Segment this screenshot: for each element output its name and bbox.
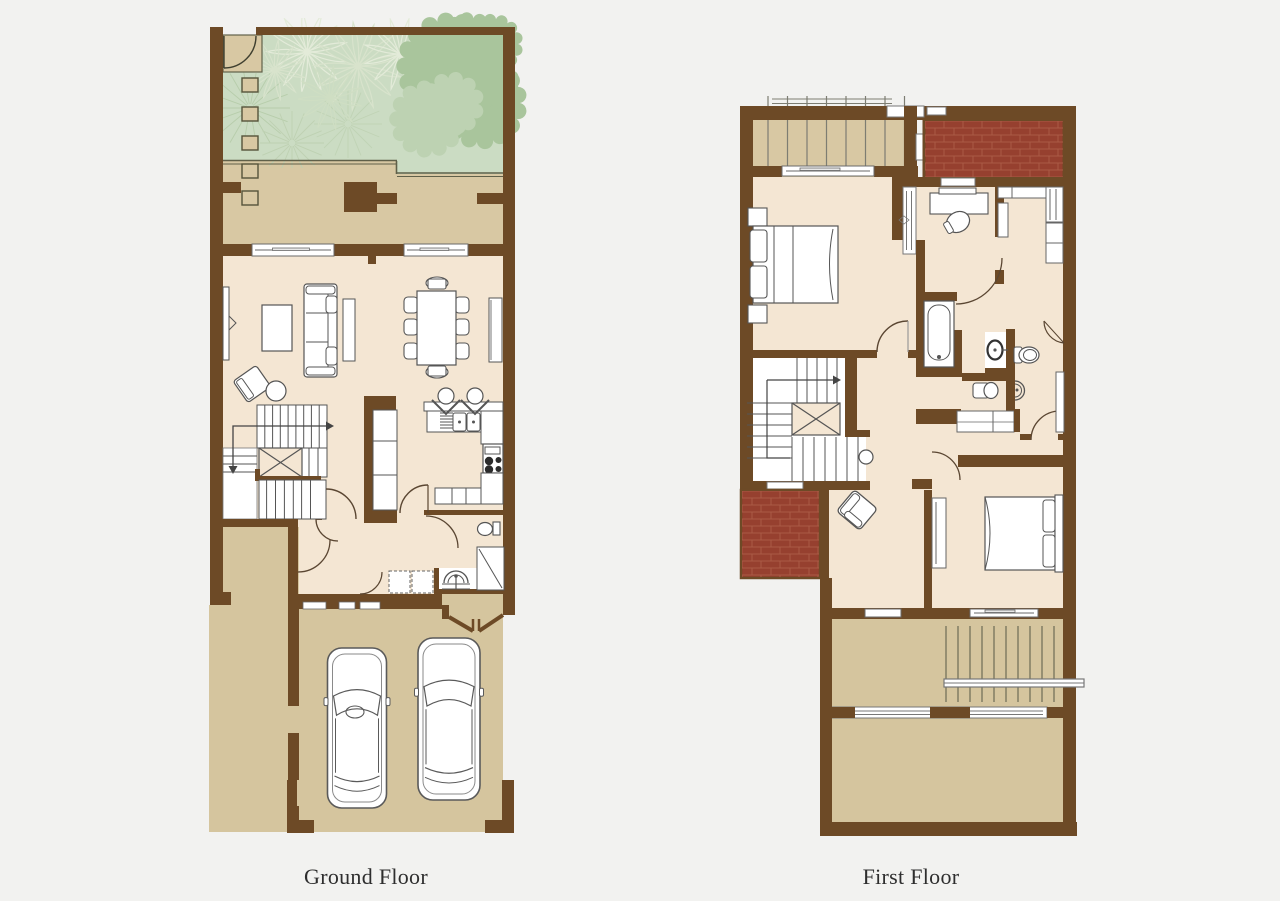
svg-text:First Floor: First Floor [863, 864, 960, 889]
svg-text:Ground Floor: Ground Floor [304, 864, 428, 889]
